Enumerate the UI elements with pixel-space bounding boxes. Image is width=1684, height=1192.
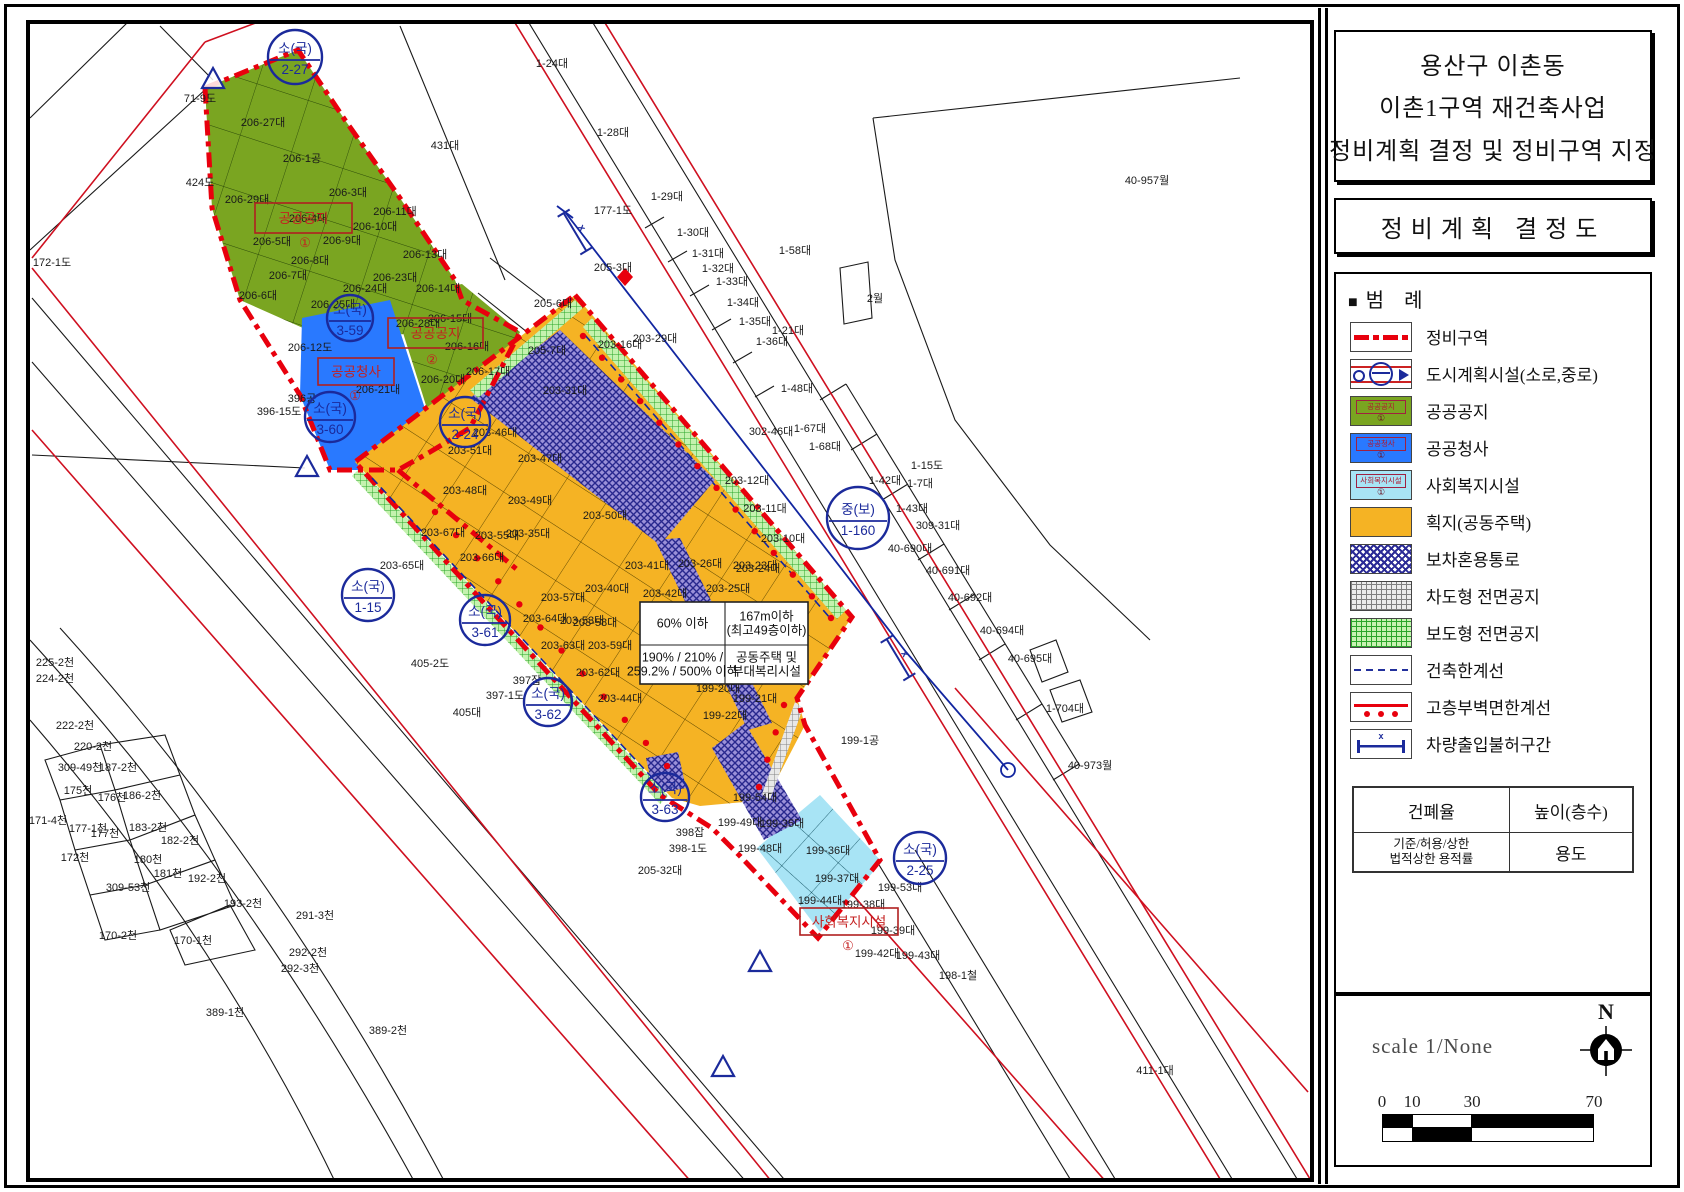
svg-text:405-2도: 405-2도 bbox=[411, 658, 449, 670]
legend-swatch-fill-green-icon: 공공공지① bbox=[1350, 396, 1412, 426]
legend-swatch-fill-blue-icon: 공공청사① bbox=[1350, 433, 1412, 463]
svg-text:206-12도: 206-12도 bbox=[288, 342, 332, 354]
svg-text:203-59대: 203-59대 bbox=[588, 639, 632, 652]
map-panel: 4-22대6-87대1-24대71-9도431대1-28대206-27대206-… bbox=[26, 20, 1314, 1182]
svg-text:172천: 172천 bbox=[61, 850, 89, 864]
svg-text:1-15: 1-15 bbox=[354, 600, 381, 615]
svg-text:170-2천: 170-2천 bbox=[99, 928, 137, 942]
map-subtitle: 정비계획 결정도 bbox=[1381, 209, 1606, 244]
table-far-line2: 법적상한 용적률 bbox=[1355, 852, 1508, 867]
svg-text:389-1천: 389-1천 bbox=[206, 1005, 244, 1019]
legend-item-label: 공공청사 bbox=[1426, 435, 1489, 460]
svg-text:292-3천: 292-3천 bbox=[281, 961, 319, 975]
svg-text:198-1철: 198-1철 bbox=[939, 969, 977, 982]
svg-text:1-67대: 1-67대 bbox=[794, 422, 826, 435]
svg-text:199-44대: 199-44대 bbox=[798, 894, 842, 907]
svg-text:199-1공: 199-1공 bbox=[841, 735, 879, 747]
legend-row-1: 도시계획시설(소로,중로) bbox=[1350, 355, 1642, 392]
svg-text:203-50대: 203-50대 bbox=[583, 509, 627, 522]
svg-text:40-692대: 40-692대 bbox=[948, 591, 992, 604]
legend-swatch-reddots-icon bbox=[1350, 692, 1412, 722]
legend-row-9: 건축한계선 bbox=[1350, 651, 1642, 688]
svg-text:398-1도: 398-1도 bbox=[669, 843, 707, 855]
svg-text:309-31대: 309-31대 bbox=[916, 519, 960, 532]
svg-text:40-695대: 40-695대 bbox=[1008, 652, 1052, 665]
svg-text:소(국): 소(국) bbox=[648, 781, 682, 796]
svg-text:203-57대: 203-57대 bbox=[541, 591, 585, 604]
svg-text:3-59: 3-59 bbox=[336, 323, 363, 338]
svg-text:206-3대: 206-3대 bbox=[329, 186, 367, 199]
page: { "panel": { "title_lines": ["용산구 이촌동", … bbox=[0, 0, 1684, 1192]
legend-item-label: 정비구역 bbox=[1426, 324, 1489, 349]
table-height-header: 높이(층수) bbox=[1509, 787, 1633, 833]
scalebar-tick: 70 bbox=[1586, 1092, 1603, 1112]
svg-text:203-48대: 203-48대 bbox=[443, 484, 487, 497]
legend-item-label: 보도형 전면공지 bbox=[1426, 620, 1540, 645]
svg-text:186-2천: 186-2천 bbox=[123, 788, 161, 802]
svg-text:203-67대: 203-67대 bbox=[421, 526, 465, 539]
legend-item-label: 보차혼용통로 bbox=[1426, 546, 1520, 571]
title-line-2: 이촌1구역 재건축사업 bbox=[1379, 88, 1607, 123]
legend-table: 건폐율 높이(층수) 기준/허용/상한 법적상한 용적률 용도 bbox=[1352, 786, 1634, 873]
legend-row-6: 보차혼용통로 bbox=[1350, 540, 1642, 577]
svg-text:203-29대: 203-29대 bbox=[633, 332, 677, 345]
svg-text:1-160: 1-160 bbox=[841, 523, 876, 538]
svg-text:199-35대: 199-35대 bbox=[760, 817, 804, 830]
north-label: N bbox=[1576, 1002, 1636, 1022]
svg-text:①: ① bbox=[842, 938, 854, 953]
legend-row-5: 획지(공동주택) bbox=[1350, 503, 1642, 540]
legend-swatch-redline-icon bbox=[1350, 322, 1412, 352]
svg-text:3-60: 3-60 bbox=[316, 422, 343, 437]
svg-text:소(국): 소(국) bbox=[333, 302, 367, 317]
svg-text:3-61: 3-61 bbox=[471, 625, 498, 640]
svg-text:1-30대: 1-30대 bbox=[677, 226, 709, 239]
legend-item-label: 건축한계선 bbox=[1426, 657, 1504, 682]
svg-text:1-21대: 1-21대 bbox=[772, 324, 804, 337]
svg-text:1-58대: 1-58대 bbox=[779, 244, 811, 257]
svg-text:공공청사: 공공청사 bbox=[331, 365, 381, 380]
svg-text:1-7대: 1-7대 bbox=[907, 477, 933, 490]
legend-item-label: 차도형 전면공지 bbox=[1426, 583, 1540, 608]
scalebar-tick: 10 bbox=[1404, 1092, 1421, 1112]
svg-text:1-33대: 1-33대 bbox=[716, 275, 748, 288]
legend-row-10: 고층부벽면한계선 bbox=[1350, 688, 1642, 725]
svg-text:1-35대: 1-35대 bbox=[739, 315, 771, 328]
scale-text: scale 1/None bbox=[1372, 1034, 1493, 1059]
svg-text:203-25대: 203-25대 bbox=[706, 582, 750, 595]
legend-swatch-grid-green-icon bbox=[1350, 618, 1412, 648]
svg-text:①: ① bbox=[299, 235, 311, 250]
svg-text:40-691대: 40-691대 bbox=[926, 564, 970, 577]
svg-text:389-2천: 389-2천 bbox=[369, 1023, 407, 1037]
svg-text:60% 이하: 60% 이하 bbox=[657, 617, 709, 631]
svg-text:199-48대: 199-48대 bbox=[738, 842, 782, 855]
svg-text:206-20대: 206-20대 bbox=[421, 373, 465, 386]
legend-swatch-fill-lblue-icon: 사회복지시설① bbox=[1350, 470, 1412, 500]
svg-text:1-34대: 1-34대 bbox=[727, 296, 759, 309]
svg-text:225-2천: 225-2천 bbox=[36, 655, 74, 669]
svg-text:182-2천: 182-2천 bbox=[161, 833, 199, 847]
svg-text:411-1대: 411-1대 bbox=[1136, 1064, 1173, 1077]
svg-text:206-14대: 206-14대 bbox=[416, 282, 460, 295]
svg-text:사회복지시설: 사회복지시설 bbox=[812, 915, 887, 930]
table-far-cell: 기준/허용/상한 법적상한 용적률 bbox=[1353, 833, 1509, 873]
svg-text:309-49천: 309-49천 bbox=[58, 760, 102, 774]
svg-text:1-15도: 1-15도 bbox=[911, 460, 943, 472]
svg-text:203-11대: 203-11대 bbox=[743, 502, 787, 515]
svg-text:206-24대: 206-24대 bbox=[343, 282, 387, 295]
legend-item-label: 공공공지 bbox=[1426, 398, 1489, 423]
svg-text:203-44대: 203-44대 bbox=[598, 692, 642, 705]
legend-item-label: 고층부벽면한계선 bbox=[1426, 694, 1551, 719]
svg-text:203-47대: 203-47대 bbox=[518, 452, 562, 465]
svg-text:공공공지: 공공공지 bbox=[411, 326, 461, 341]
svg-text:192-2천: 192-2천 bbox=[188, 871, 226, 885]
svg-text:1-704대: 1-704대 bbox=[1046, 702, 1084, 715]
svg-text:1-31대: 1-31대 bbox=[692, 247, 724, 260]
svg-text:공동주택 및부대복리시설: 공동주택 및부대복리시설 bbox=[732, 651, 801, 679]
svg-text:424도: 424도 bbox=[186, 177, 214, 189]
svg-text:205-32대: 205-32대 bbox=[638, 864, 682, 877]
svg-text:187-2천: 187-2천 bbox=[99, 760, 137, 774]
svg-text:소(국): 소(국) bbox=[313, 401, 347, 416]
svg-text:공공공지: 공공공지 bbox=[279, 211, 329, 226]
svg-text:2월: 2월 bbox=[867, 292, 883, 305]
svg-text:x: x bbox=[898, 649, 911, 660]
svg-text:40-690대: 40-690대 bbox=[888, 542, 932, 555]
svg-text:1-43대: 1-43대 bbox=[896, 502, 928, 515]
title-box: 용산구 이촌동 이촌1구역 재건축사업 정비계획 결정 및 정비구역 지정 bbox=[1334, 30, 1652, 182]
table-use-cell: 용도 bbox=[1509, 833, 1633, 873]
svg-text:203-46대: 203-46대 bbox=[473, 426, 517, 439]
svg-text:220-2천: 220-2천 bbox=[74, 739, 112, 753]
subtitle-box: 정비계획 결정도 bbox=[1334, 198, 1652, 254]
svg-text:206-9대: 206-9대 bbox=[323, 234, 361, 247]
svg-text:398잡: 398잡 bbox=[676, 826, 704, 839]
legend-swatch-grid-gray-icon bbox=[1350, 581, 1412, 611]
svg-text:2-25: 2-25 bbox=[906, 863, 933, 878]
svg-text:2-27: 2-27 bbox=[281, 62, 308, 77]
svg-text:193-2천: 193-2천 bbox=[224, 896, 262, 910]
svg-text:396-15도: 396-15도 bbox=[257, 406, 301, 418]
svg-text:203-63대: 203-63대 bbox=[541, 639, 585, 652]
svg-text:203-58대: 203-58대 bbox=[573, 616, 617, 629]
legend-item-label: 획지(공동주택) bbox=[1426, 509, 1531, 534]
svg-text:172-1도: 172-1도 bbox=[33, 257, 71, 269]
svg-text:71-9도: 71-9도 bbox=[184, 93, 216, 105]
svg-text:203-31대: 203-31대 bbox=[543, 384, 587, 397]
legend-item-label: 도시계획시설(소로,중로) bbox=[1426, 361, 1598, 386]
svg-text:177천: 177천 bbox=[91, 826, 119, 840]
svg-text:292-2천: 292-2천 bbox=[289, 945, 327, 959]
svg-text:203-62대: 203-62대 bbox=[576, 666, 620, 679]
svg-text:203-10대: 203-10대 bbox=[761, 532, 805, 545]
svg-text:190% / 210% /259.2% / 500% 이하: 190% / 210% /259.2% / 500% 이하 bbox=[627, 651, 739, 679]
svg-text:소(국): 소(국) bbox=[278, 41, 312, 56]
legend-row-11: 차량출입불허구간 bbox=[1350, 725, 1642, 762]
legend-header: ■범 례 bbox=[1348, 284, 1422, 313]
svg-text:309-53천: 309-53천 bbox=[106, 880, 150, 894]
svg-text:203-49대: 203-49대 bbox=[508, 494, 552, 507]
svg-text:199-54대: 199-54대 bbox=[733, 791, 777, 804]
svg-text:203-66대: 203-66대 bbox=[460, 551, 504, 564]
svg-text:203-23대: 203-23대 bbox=[733, 559, 777, 572]
svg-text:206-5대: 206-5대 bbox=[253, 235, 291, 248]
svg-text:1-29대: 1-29대 bbox=[651, 190, 683, 203]
svg-text:203-65대: 203-65대 bbox=[380, 559, 424, 572]
svg-text:소(국): 소(국) bbox=[531, 686, 565, 701]
svg-text:199-42대: 199-42대 bbox=[855, 947, 899, 960]
svg-text:199-21대: 199-21대 bbox=[733, 692, 777, 705]
svg-text:205-7대: 205-7대 bbox=[528, 344, 566, 357]
svg-text:206-11대: 206-11대 bbox=[373, 205, 417, 218]
svg-text:40-973월: 40-973월 bbox=[1068, 759, 1112, 772]
svg-text:소(국): 소(국) bbox=[351, 579, 385, 594]
svg-text:175천: 175천 bbox=[64, 783, 92, 797]
table-coverage-header: 건폐율 bbox=[1353, 787, 1509, 833]
svg-text:2-24: 2-24 bbox=[451, 427, 479, 442]
svg-text:206-1공: 206-1공 bbox=[283, 153, 321, 165]
legend-row-8: 보도형 전면공지 bbox=[1350, 614, 1642, 651]
svg-text:소(국): 소(국) bbox=[903, 842, 937, 857]
legend-header-label: 범 례 bbox=[1366, 290, 1423, 312]
svg-text:40-957월: 40-957월 bbox=[1125, 174, 1169, 187]
svg-text:205-6대: 205-6대 bbox=[534, 297, 572, 310]
svg-text:206-27대: 206-27대 bbox=[241, 116, 285, 129]
svg-text:②: ② bbox=[426, 352, 438, 367]
svg-text:222-2천: 222-2천 bbox=[56, 718, 94, 732]
svg-text:199-38대: 199-38대 bbox=[841, 898, 885, 911]
legend-swatch-city-icon bbox=[1350, 359, 1412, 389]
svg-text:291-3천: 291-3천 bbox=[296, 908, 334, 922]
svg-text:206-7대: 206-7대 bbox=[269, 269, 307, 282]
legend-row-4: 사회복지시설①사회복지시설 bbox=[1350, 466, 1642, 503]
svg-text:199-49대: 199-49대 bbox=[718, 816, 762, 829]
svg-text:206-6대: 206-6대 bbox=[239, 289, 277, 302]
legend-swatch-fill-orange-icon bbox=[1350, 507, 1412, 537]
svg-text:199-36대: 199-36대 bbox=[806, 844, 850, 857]
scalebar-bar bbox=[1382, 1114, 1594, 1142]
svg-text:소(국): 소(국) bbox=[468, 604, 502, 619]
legend-item-label: 차량출입불허구간 bbox=[1426, 731, 1551, 756]
svg-text:1-48대: 1-48대 bbox=[781, 382, 813, 395]
scale-box: scale 1/None N 0103070 bbox=[1334, 994, 1652, 1167]
svg-text:431대: 431대 bbox=[431, 139, 459, 152]
svg-text:206-13대: 206-13대 bbox=[403, 248, 447, 261]
svg-text:224-2천: 224-2천 bbox=[36, 671, 74, 685]
legend-square-icon: ■ bbox=[1348, 294, 1358, 311]
svg-text:206-8대: 206-8대 bbox=[291, 254, 329, 267]
svg-text:203-42대: 203-42대 bbox=[643, 587, 687, 600]
svg-text:397-1도: 397-1도 bbox=[486, 690, 524, 702]
svg-text:①: ① bbox=[349, 388, 361, 403]
svg-text:206-10대: 206-10대 bbox=[353, 220, 397, 233]
legend-swatch-bluebar-icon bbox=[1350, 729, 1412, 759]
svg-text:1-42대: 1-42대 bbox=[869, 474, 901, 487]
scalebar: 0103070 bbox=[1382, 1092, 1594, 1152]
svg-text:199-43대: 199-43대 bbox=[896, 949, 940, 962]
svg-text:206-29대: 206-29대 bbox=[225, 193, 269, 206]
legend-swatch-bluedash-icon bbox=[1350, 655, 1412, 685]
legend-swatch-xhatch-blue-icon bbox=[1350, 544, 1412, 574]
legend-box: ■범 례 정비구역도시계획시설(소로,중로)공공공지①공공공지공공청사①공공청사… bbox=[1334, 272, 1652, 994]
svg-text:1-28대: 1-28대 bbox=[597, 126, 629, 139]
svg-text:205-3대: 205-3대 bbox=[594, 261, 632, 274]
scalebar-tick: 0 bbox=[1378, 1092, 1387, 1112]
svg-text:3-63: 3-63 bbox=[651, 802, 678, 817]
svg-text:3-62: 3-62 bbox=[534, 707, 561, 722]
north-compass-icon bbox=[1578, 1022, 1634, 1078]
title-line-1: 용산구 이촌동 bbox=[1420, 46, 1565, 81]
svg-text:1-32대: 1-32대 bbox=[702, 262, 734, 275]
svg-text:183-2천: 183-2천 bbox=[129, 820, 167, 834]
panel-separator bbox=[1318, 8, 1328, 1184]
title-line-3: 정비계획 결정 및 정비구역 지정 bbox=[1329, 131, 1657, 166]
regulation-info-box: 60% 이하167m이하(최고49층이하)190% / 210% /259.2%… bbox=[627, 602, 808, 684]
legend-items: 정비구역도시계획시설(소로,중로)공공공지①공공공지공공청사①공공청사사회복지시… bbox=[1350, 318, 1642, 762]
svg-text:203-41대: 203-41대 bbox=[625, 559, 669, 572]
legend-item-label: 사회복지시설 bbox=[1426, 472, 1520, 497]
table-far-line1: 기준/허용/상한 bbox=[1355, 837, 1508, 852]
svg-text:170-1천: 170-1천 bbox=[174, 933, 212, 947]
legend-row-0: 정비구역 bbox=[1350, 318, 1642, 355]
scalebar-ticks: 0103070 bbox=[1382, 1092, 1594, 1110]
legend-row-2: 공공공지①공공공지 bbox=[1350, 392, 1642, 429]
svg-text:203-40대: 203-40대 bbox=[585, 582, 629, 595]
legend-row-3: 공공청사①공공청사 bbox=[1350, 429, 1642, 466]
map-svg: 4-22대6-87대1-24대71-9도431대1-28대206-27대206-… bbox=[30, 24, 1310, 1178]
svg-text:1-68대: 1-68대 bbox=[809, 440, 841, 453]
svg-text:소(국): 소(국) bbox=[448, 406, 482, 421]
svg-text:180천: 180천 bbox=[134, 852, 162, 866]
svg-text:206-17대: 206-17대 bbox=[466, 365, 510, 378]
svg-text:181천: 181천 bbox=[154, 866, 182, 880]
svg-text:203-12대: 203-12대 bbox=[725, 474, 769, 487]
svg-text:중(보): 중(보) bbox=[841, 502, 875, 517]
svg-text:302-46대: 302-46대 bbox=[749, 425, 793, 438]
svg-text:1-24대: 1-24대 bbox=[536, 57, 568, 70]
svg-text:177-1도: 177-1도 bbox=[594, 205, 632, 217]
legend-row-7: 차도형 전면공지 bbox=[1350, 577, 1642, 614]
svg-text:203-35대: 203-35대 bbox=[506, 527, 550, 540]
svg-text:405대: 405대 bbox=[453, 706, 481, 719]
north-indicator: N bbox=[1576, 1002, 1636, 1083]
svg-text:199-22대: 199-22대 bbox=[703, 709, 747, 722]
svg-text:171-4천: 171-4천 bbox=[30, 813, 67, 827]
svg-text:40-694대: 40-694대 bbox=[980, 624, 1024, 637]
scalebar-tick: 30 bbox=[1464, 1092, 1481, 1112]
svg-text:203-26대: 203-26대 bbox=[678, 557, 722, 570]
svg-text:199-37대: 199-37대 bbox=[815, 872, 859, 885]
